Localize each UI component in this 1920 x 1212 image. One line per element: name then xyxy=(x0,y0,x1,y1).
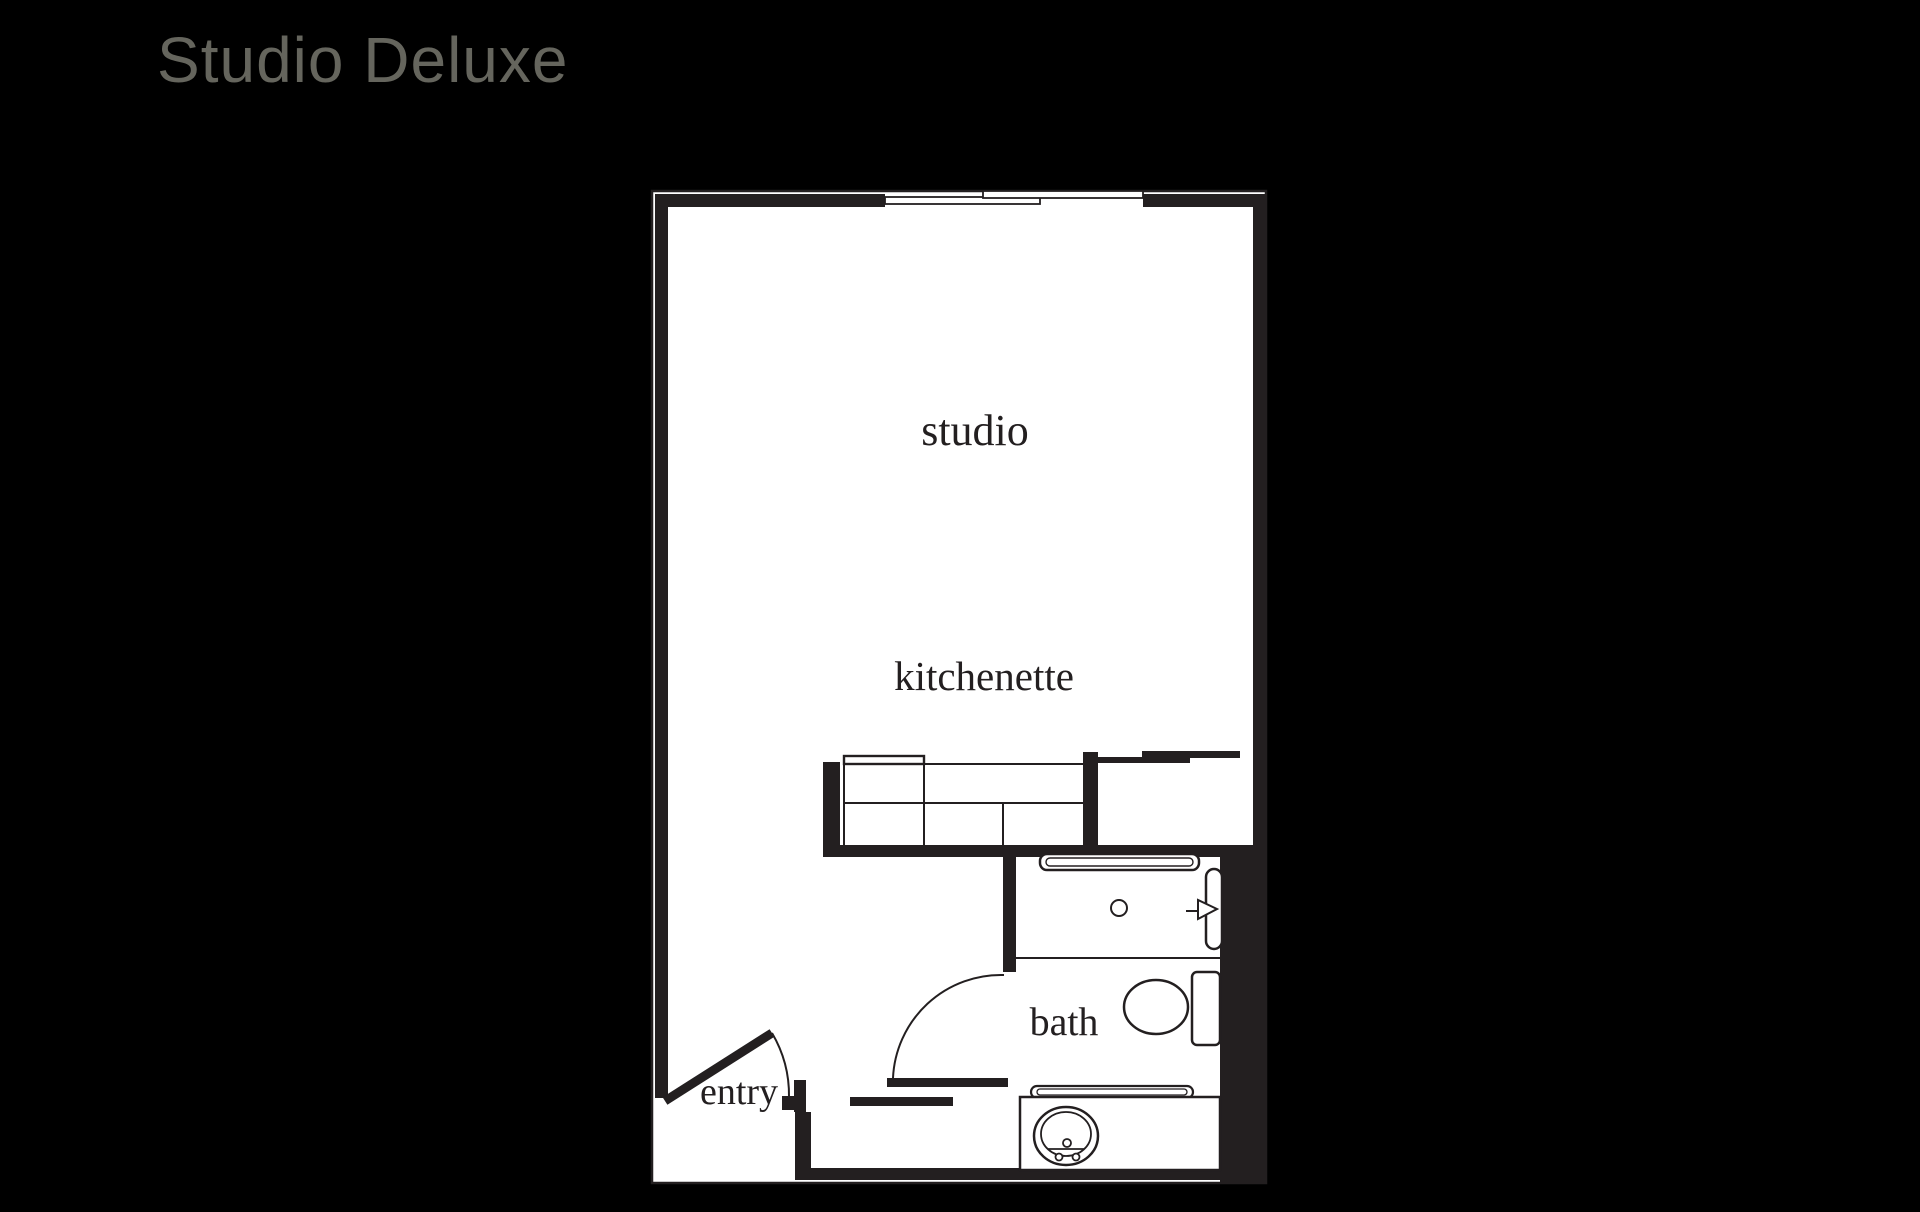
window-pane-upper xyxy=(983,191,1143,198)
wall-top-right xyxy=(1143,194,1263,207)
bath-label: bath xyxy=(1030,999,1099,1044)
sink-faucet-hole-left xyxy=(1056,1154,1063,1161)
kitchenette-label: kitchenette xyxy=(894,653,1074,699)
studio-label: studio xyxy=(921,406,1029,455)
closet-sliding-door-upper xyxy=(1142,751,1240,758)
shower-sliding-door xyxy=(1040,854,1199,870)
sink-faucet-hole-right xyxy=(1073,1154,1080,1161)
wall-top-left xyxy=(655,194,885,207)
counter-sink-strip xyxy=(844,756,924,764)
shower-drain xyxy=(1111,900,1127,916)
wall-hall-bath xyxy=(1003,857,1016,972)
wall-hall-left xyxy=(795,1112,811,1168)
bath-door-leaf xyxy=(887,1078,1008,1087)
bath-door-lower-bar xyxy=(850,1097,953,1106)
toilet-bowl xyxy=(1124,980,1188,1034)
wall-entry-stub xyxy=(794,1080,806,1112)
sink-drain xyxy=(1063,1139,1071,1147)
wall-right-upper xyxy=(1253,194,1265,857)
entry-label: entry xyxy=(700,1071,778,1113)
wall-left xyxy=(655,194,668,1098)
toilet-tank xyxy=(1192,972,1220,1045)
wall-kitchenette-stub xyxy=(823,762,840,845)
floor-plan: studio kitchenette bath entry xyxy=(0,0,1920,1212)
wall-kitchenette-closet xyxy=(1083,752,1098,845)
wall-entry-stub-foot xyxy=(782,1096,794,1110)
wall-right-lower xyxy=(1220,845,1266,1183)
floor-plan-page: Studio Deluxe xyxy=(0,0,1920,1212)
